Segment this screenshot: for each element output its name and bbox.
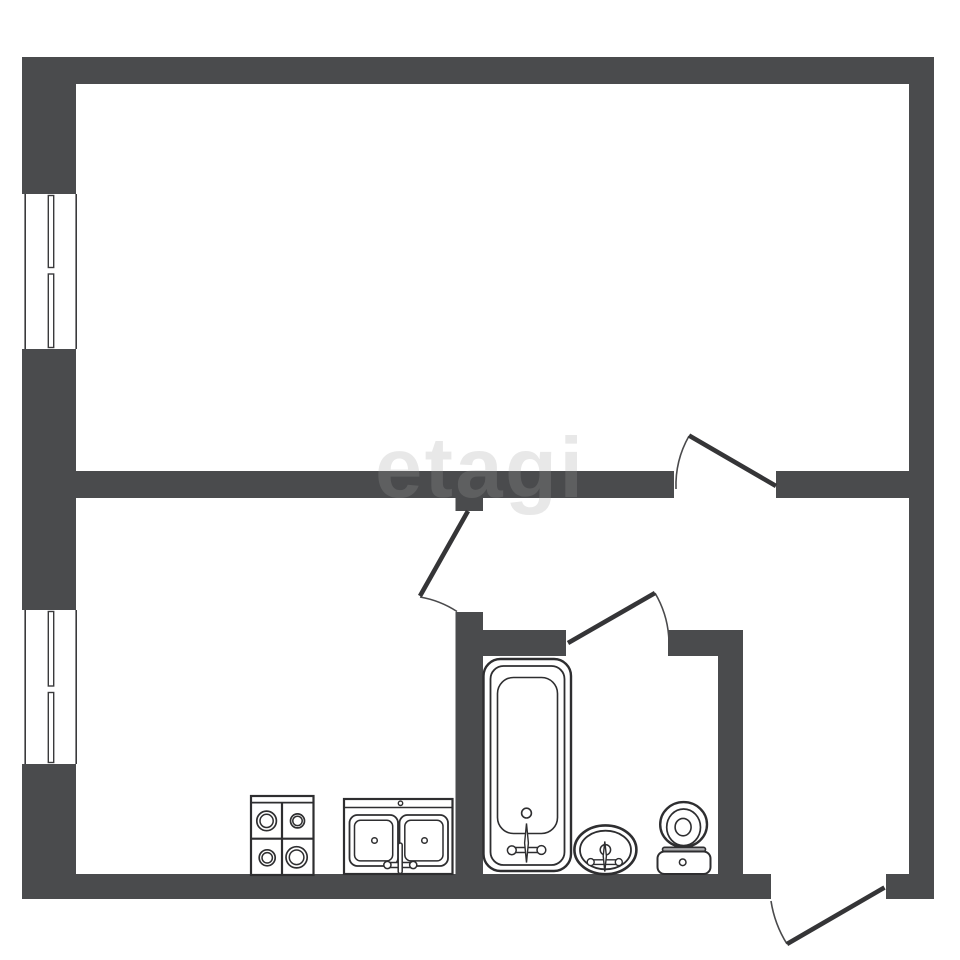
svg-text:etagi: etagi xyxy=(375,421,585,516)
